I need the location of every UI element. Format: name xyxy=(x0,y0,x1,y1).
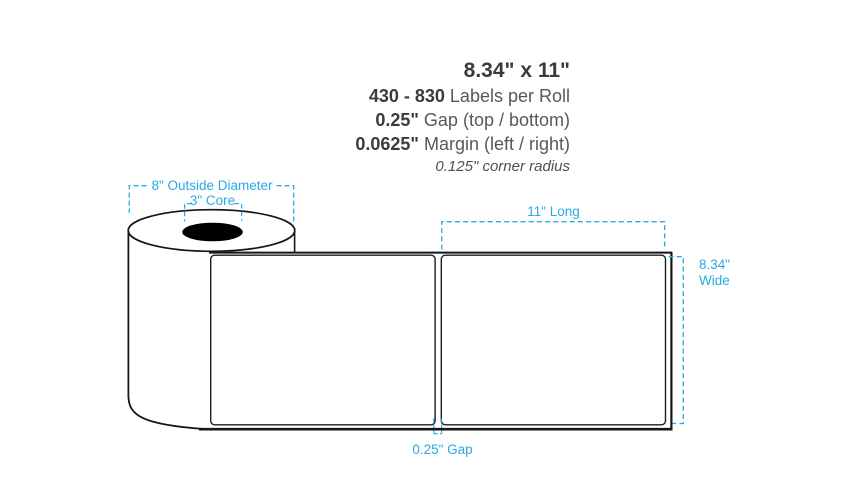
width-dimension-unit: Wide xyxy=(699,273,730,289)
width-dimension-value: 8.34" xyxy=(699,257,730,273)
outside-diameter-dimension-left xyxy=(129,186,146,213)
length-dimension-line xyxy=(442,222,665,250)
gap-dimension-label: 0.25" Gap xyxy=(412,442,472,458)
core-dimension-label: 3" Core xyxy=(190,193,235,209)
length-dimension-label: 11" Long xyxy=(527,204,580,220)
roll-core xyxy=(182,223,243,242)
roll-body-outline xyxy=(128,231,204,429)
label-roll-spec-page: 8.34" x 11" 430 - 830 Labels per Roll 0.… xyxy=(0,0,850,502)
label-roll-diagram xyxy=(0,0,850,502)
outside-diameter-dimension-right xyxy=(277,186,294,222)
label-sheet-1 xyxy=(211,255,435,425)
label-sheet-2 xyxy=(441,255,665,425)
width-dimension-label: 8.34" Wide xyxy=(699,257,730,288)
outside-diameter-dimension-label: 8" Outside Diameter xyxy=(151,178,272,194)
